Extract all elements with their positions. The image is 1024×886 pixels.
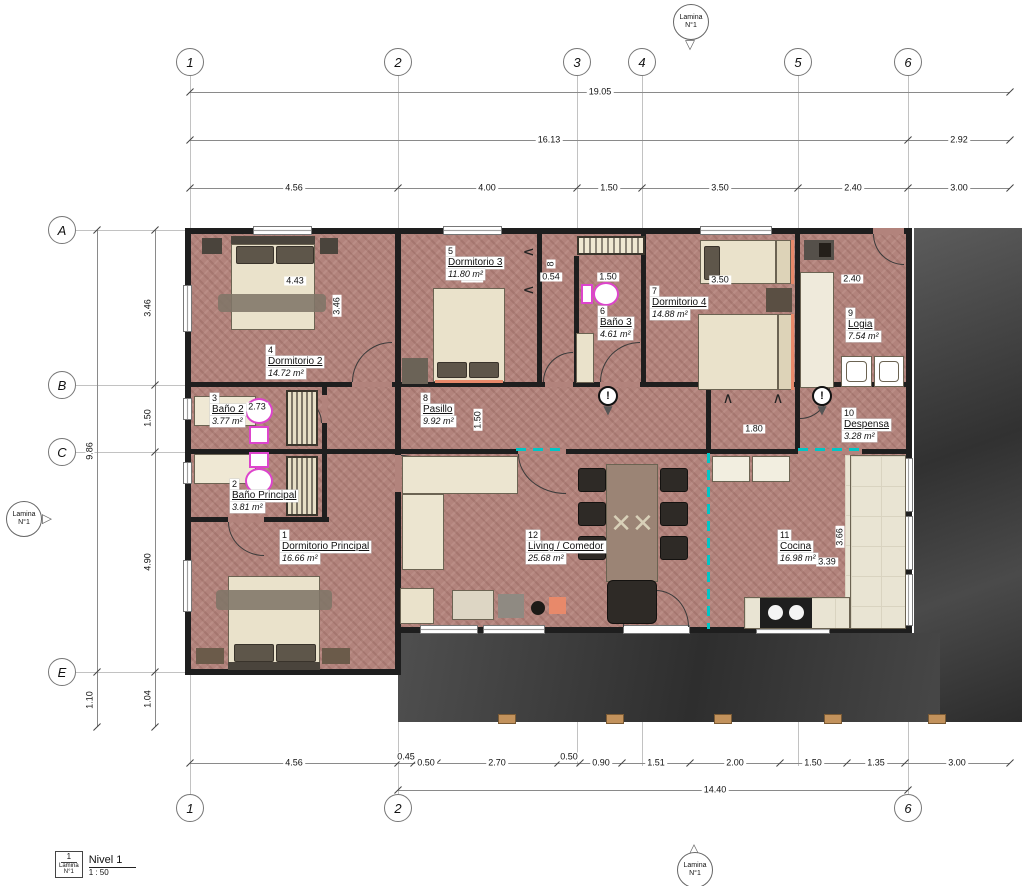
room-tag-dormitorio-principal: 1 Dormitorio Principal 16.66 m²: [280, 530, 371, 564]
nightstand: [196, 648, 224, 664]
window: [253, 226, 312, 235]
room-number: 4: [266, 345, 275, 356]
dim-label: 2.73: [246, 403, 268, 412]
grid-bubble-row-c: C: [48, 438, 76, 466]
ottoman: [549, 597, 566, 614]
dining-chair: [607, 580, 657, 624]
sheet-ref-label: Lamina: [680, 14, 703, 22]
room-name: Despensa: [842, 419, 891, 431]
dim-label: 3.50: [709, 184, 731, 193]
logia-counter: [800, 272, 834, 388]
closet-door-mark: ∧: [519, 247, 537, 258]
dim-label: 2.40: [841, 275, 863, 284]
room-tag-pasillo: 8 Pasillo 9.92 m²: [421, 393, 456, 427]
room-tag-logia: 9 Logia 7.54 m²: [846, 308, 881, 342]
room-number: 8: [421, 393, 430, 404]
dim-label: 3.00: [946, 759, 968, 768]
grid-bubble-col-6: 6: [894, 48, 922, 76]
sheet-ref-label: N°1: [18, 519, 30, 527]
dim-label: 1.50: [474, 409, 483, 431]
nightstand: [202, 238, 222, 254]
door-opening: [352, 382, 392, 387]
dim-label: 3.50: [709, 276, 731, 285]
bed-headboard: [228, 662, 320, 670]
room-name: Baño 3: [598, 317, 634, 329]
view-reference: 1 Lamina N°1: [55, 851, 83, 878]
room-tag-despensa: 10 Despensa 3.28 m²: [842, 408, 891, 442]
room-area: 3.77 m²: [210, 416, 245, 427]
dim-label: 1.50: [597, 273, 619, 282]
window: [183, 560, 192, 612]
window: [443, 226, 502, 235]
dim-label: 4.00: [476, 184, 498, 193]
room-area: 25.68 m²: [526, 553, 566, 564]
stove-burner: [768, 605, 783, 620]
grid-bubble-row-a: A: [48, 216, 76, 244]
dim-label: 0.90: [590, 759, 612, 768]
pillow: [276, 644, 316, 662]
bed-accent: [435, 380, 503, 383]
dim-label: 3.46: [333, 295, 342, 317]
room-name: Dormitorio 3: [446, 257, 504, 269]
view-number: 1: [61, 853, 77, 863]
room-number: 7: [650, 286, 659, 297]
bed-accent: [791, 314, 794, 390]
room-area: 7.54 m²: [846, 331, 881, 342]
grid-bubble-bottom-6: 6: [894, 794, 922, 822]
grid-bubble-bottom-1: 1: [176, 794, 204, 822]
wall-exterior-right: [906, 228, 912, 633]
dim-label: 1.51: [645, 759, 667, 768]
dim-line-bottom-2: [398, 790, 908, 791]
dim-line-left-outer: [97, 230, 98, 727]
sheet-ref-label: Lamina: [13, 511, 36, 519]
dresser: [402, 358, 428, 384]
room-name: Cocina: [778, 541, 813, 553]
dim-label: 3.66: [836, 526, 845, 548]
section-dashed-line: [798, 448, 860, 451]
window: [183, 462, 192, 484]
room-number: 3: [210, 393, 219, 404]
room-tag-bano-2: 3 Baño 2 3.77 m²: [210, 393, 246, 427]
room-number: 10: [842, 408, 856, 419]
dim-label: 3.00: [948, 184, 970, 193]
room-area: 4.61 m²: [598, 329, 633, 340]
dim-label: 0.54: [540, 273, 562, 282]
marker-arrow-right-icon: ▷: [42, 512, 52, 527]
room-name: Dormitorio 4: [650, 297, 708, 309]
kitchen-counter: [850, 455, 906, 629]
view-sheet: Lamina: [59, 863, 79, 870]
dim-label: 1.04: [144, 688, 153, 710]
radiator: [577, 236, 645, 255]
pillow: [234, 644, 274, 662]
dim-label: 2.40: [842, 184, 864, 193]
shower: [286, 390, 318, 446]
bed: [698, 314, 778, 390]
nightstand: [320, 238, 338, 254]
dining-chair: [660, 536, 688, 560]
dim-line-top-2: [190, 140, 1010, 141]
dryer-door: [879, 361, 899, 382]
blanket-blur: [218, 294, 326, 312]
side-table: [452, 590, 494, 620]
dim-label: 1.10: [86, 689, 95, 711]
room-area: 9.92 m²: [421, 416, 456, 427]
toilet-icon: [249, 426, 269, 444]
grid-bubble-col-4: 4: [628, 48, 656, 76]
room-tag-dormitorio-2: 4 Dormitorio 2 14.72 m²: [266, 345, 324, 379]
blanket-blur: [216, 590, 332, 610]
rafter-tab: [498, 714, 516, 724]
dining-table: ✕✕: [606, 464, 658, 582]
room-area: 3.81 m²: [230, 502, 265, 513]
window: [483, 625, 545, 634]
wall-dorm3-east: [537, 228, 542, 387]
marker-arrow-down-icon: ▽: [685, 38, 695, 53]
door-opening: [322, 395, 327, 423]
stove-burner: [789, 605, 804, 620]
dim-label: 0.50: [558, 753, 580, 762]
wall-hall-east-stub: [706, 387, 711, 454]
dim-label: 19.05: [587, 88, 614, 97]
sheet-ref-label: N°1: [685, 22, 697, 30]
room-number: 12: [526, 530, 540, 541]
nightstand: [766, 288, 792, 312]
room-number: 2: [230, 479, 239, 490]
armchair: [400, 588, 434, 624]
room-name: Baño 2: [210, 404, 246, 416]
dim-label: 3.39: [816, 558, 838, 567]
rafter-tab: [928, 714, 946, 724]
room-number: 5: [446, 246, 455, 257]
media-box: [498, 594, 524, 618]
dim-label: 8: [547, 259, 556, 268]
dim-label: 1.35: [865, 759, 887, 768]
room-area: 16.98 m²: [778, 553, 818, 564]
dim-line-left-inner: [155, 230, 156, 727]
dim-label: 3.46: [144, 297, 153, 319]
room-tag-cocina: 11 Cocina 16.98 m²: [778, 530, 818, 564]
dim-label: 14.40: [702, 786, 729, 795]
rafter-tab: [824, 714, 842, 724]
kitchen-cabinet: [752, 456, 790, 482]
sofa: [402, 494, 444, 570]
nightstand: [322, 648, 350, 664]
room-name: Logia: [846, 319, 874, 331]
room-number: 1: [280, 530, 289, 541]
room-area: 14.72 m²: [266, 368, 306, 379]
toilet-icon: [581, 284, 593, 304]
door-leaf-mark: ∧: [723, 389, 734, 407]
room-name: Dormitorio 2: [266, 356, 324, 368]
window: [420, 625, 478, 634]
dim-label: 1.50: [144, 407, 153, 429]
sheet-ref-label: N°1: [689, 870, 701, 878]
toilet-icon: [249, 452, 269, 468]
dim-label: 1.50: [802, 759, 824, 768]
view-title: Nivel 1: [89, 854, 137, 868]
room-area: 11.80 m²: [446, 269, 485, 280]
pillow: [236, 246, 274, 264]
door-leaf-mark: ∧: [773, 389, 784, 407]
speaker: [531, 601, 545, 615]
room-tag-dormitorio-4: 7 Dormitorio 4 14.88 m²: [650, 286, 708, 320]
room-area: 14.88 m²: [650, 309, 690, 320]
pillow: [276, 246, 314, 264]
sheet-ref-marker-bottom: Lamina N°1: [677, 852, 713, 886]
rafter-tab: [606, 714, 624, 724]
room-number: 6: [598, 306, 607, 317]
grid-bubble-bottom-2: 2: [384, 794, 412, 822]
dining-chair: [578, 502, 606, 526]
sheet-ref-marker-left: Lamina N°1: [6, 501, 42, 537]
room-number: 9: [846, 308, 855, 319]
room-area: 16.66 m²: [280, 553, 320, 564]
room-name: Dormitorio Principal: [280, 541, 371, 553]
room-tag-bano-3: 6 Baño 3 4.61 m²: [598, 306, 634, 340]
view-sheet: N°1: [64, 869, 74, 876]
dining-chair: [660, 502, 688, 526]
pillow: [469, 362, 499, 378]
grid-bubble-col-5: 5: [784, 48, 812, 76]
grid-line-row-b: [76, 385, 188, 386]
floor-plan-sheet: 19.05 16.13 2.92 4.56 4.00 1.50 3.50 2.4…: [0, 0, 1024, 886]
grid-bubble-col-1: 1: [176, 48, 204, 76]
dim-label: 0.45: [395, 753, 417, 762]
section-dashed-line: [707, 453, 710, 629]
dim-label: 2.92: [948, 136, 970, 145]
window: [183, 285, 192, 332]
dining-chair: [660, 468, 688, 492]
room-name: Pasillo: [421, 404, 454, 416]
bed-accent: [791, 240, 794, 284]
kitchen-cabinet: [712, 456, 750, 482]
dim-label: 4.56: [283, 759, 305, 768]
dining-chair: [578, 468, 606, 492]
laundry-sink-basin: [819, 243, 831, 257]
dim-label: 0.50: [415, 759, 437, 768]
grid-bubble-row-e: E: [48, 658, 76, 686]
dim-label: 4.90: [144, 551, 153, 573]
bed-frame: [776, 240, 791, 284]
toilet-icon: [593, 282, 619, 306]
room-number: 11: [778, 530, 791, 541]
view-title-block: 1 Lamina N°1 Nivel 1 1 : 50: [55, 851, 136, 878]
grid-bubble-col-3: 3: [563, 48, 591, 76]
bed-headboard: [231, 236, 315, 244]
room-name: Baño Principal: [230, 490, 298, 502]
room-name: Living / Comedor: [526, 541, 606, 553]
view-scale: 1 : 50: [89, 868, 137, 878]
room-tag-dormitorio-3: 5 Dormitorio 3 11.80 m²: [446, 246, 504, 280]
dim-label: 1.50: [598, 184, 620, 193]
room-tag-bano-principal: 2 Baño Principal 3.81 m²: [230, 479, 298, 513]
rafter-tab: [714, 714, 732, 724]
washer-door: [846, 361, 867, 382]
room-tag-living-comedor: 12 Living / Comedor 25.68 m²: [526, 530, 606, 564]
window: [183, 398, 192, 420]
grid-bubble-row-b: B: [48, 371, 76, 399]
attention-marker-arrow-icon: ▼: [817, 403, 826, 417]
dim-label: 16.13: [536, 136, 563, 145]
sheet-ref-marker-top: Lamina N°1: [673, 4, 709, 40]
dim-label: 4.56: [283, 184, 305, 193]
grid-line-row-a: [76, 230, 188, 231]
dim-label: 1.80: [743, 425, 765, 434]
door-opening: [545, 382, 573, 387]
section-dashed-line: [516, 448, 566, 451]
closet-door-mark: ∧: [519, 285, 537, 296]
cabinet: [576, 333, 594, 383]
dim-label: 2.70: [486, 759, 508, 768]
dim-label: 9.86: [86, 440, 95, 462]
window: [700, 226, 772, 235]
sofa: [402, 456, 518, 494]
pillow: [437, 362, 467, 378]
sheet-ref-label: Lamina: [684, 862, 707, 870]
grid-line-row-e: [76, 672, 188, 673]
room-area: 3.28 m²: [842, 431, 877, 442]
dim-label: 2.00: [724, 759, 746, 768]
attention-marker-arrow-icon: ▼: [603, 403, 612, 417]
grid-bubble-col-2: 2: [384, 48, 412, 76]
dim-label: 4.43: [284, 277, 306, 286]
terrace-area-bottom: [398, 633, 940, 722]
